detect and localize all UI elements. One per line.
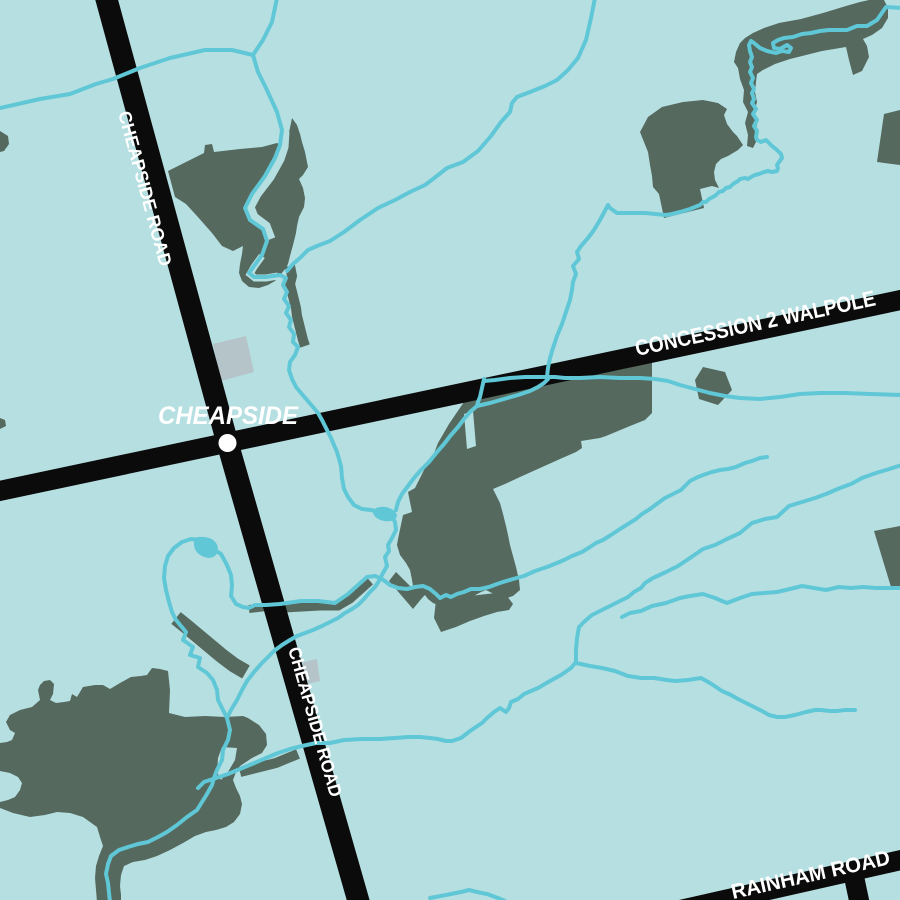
svg-text:CHEAPSIDE: CHEAPSIDE bbox=[158, 402, 299, 430]
